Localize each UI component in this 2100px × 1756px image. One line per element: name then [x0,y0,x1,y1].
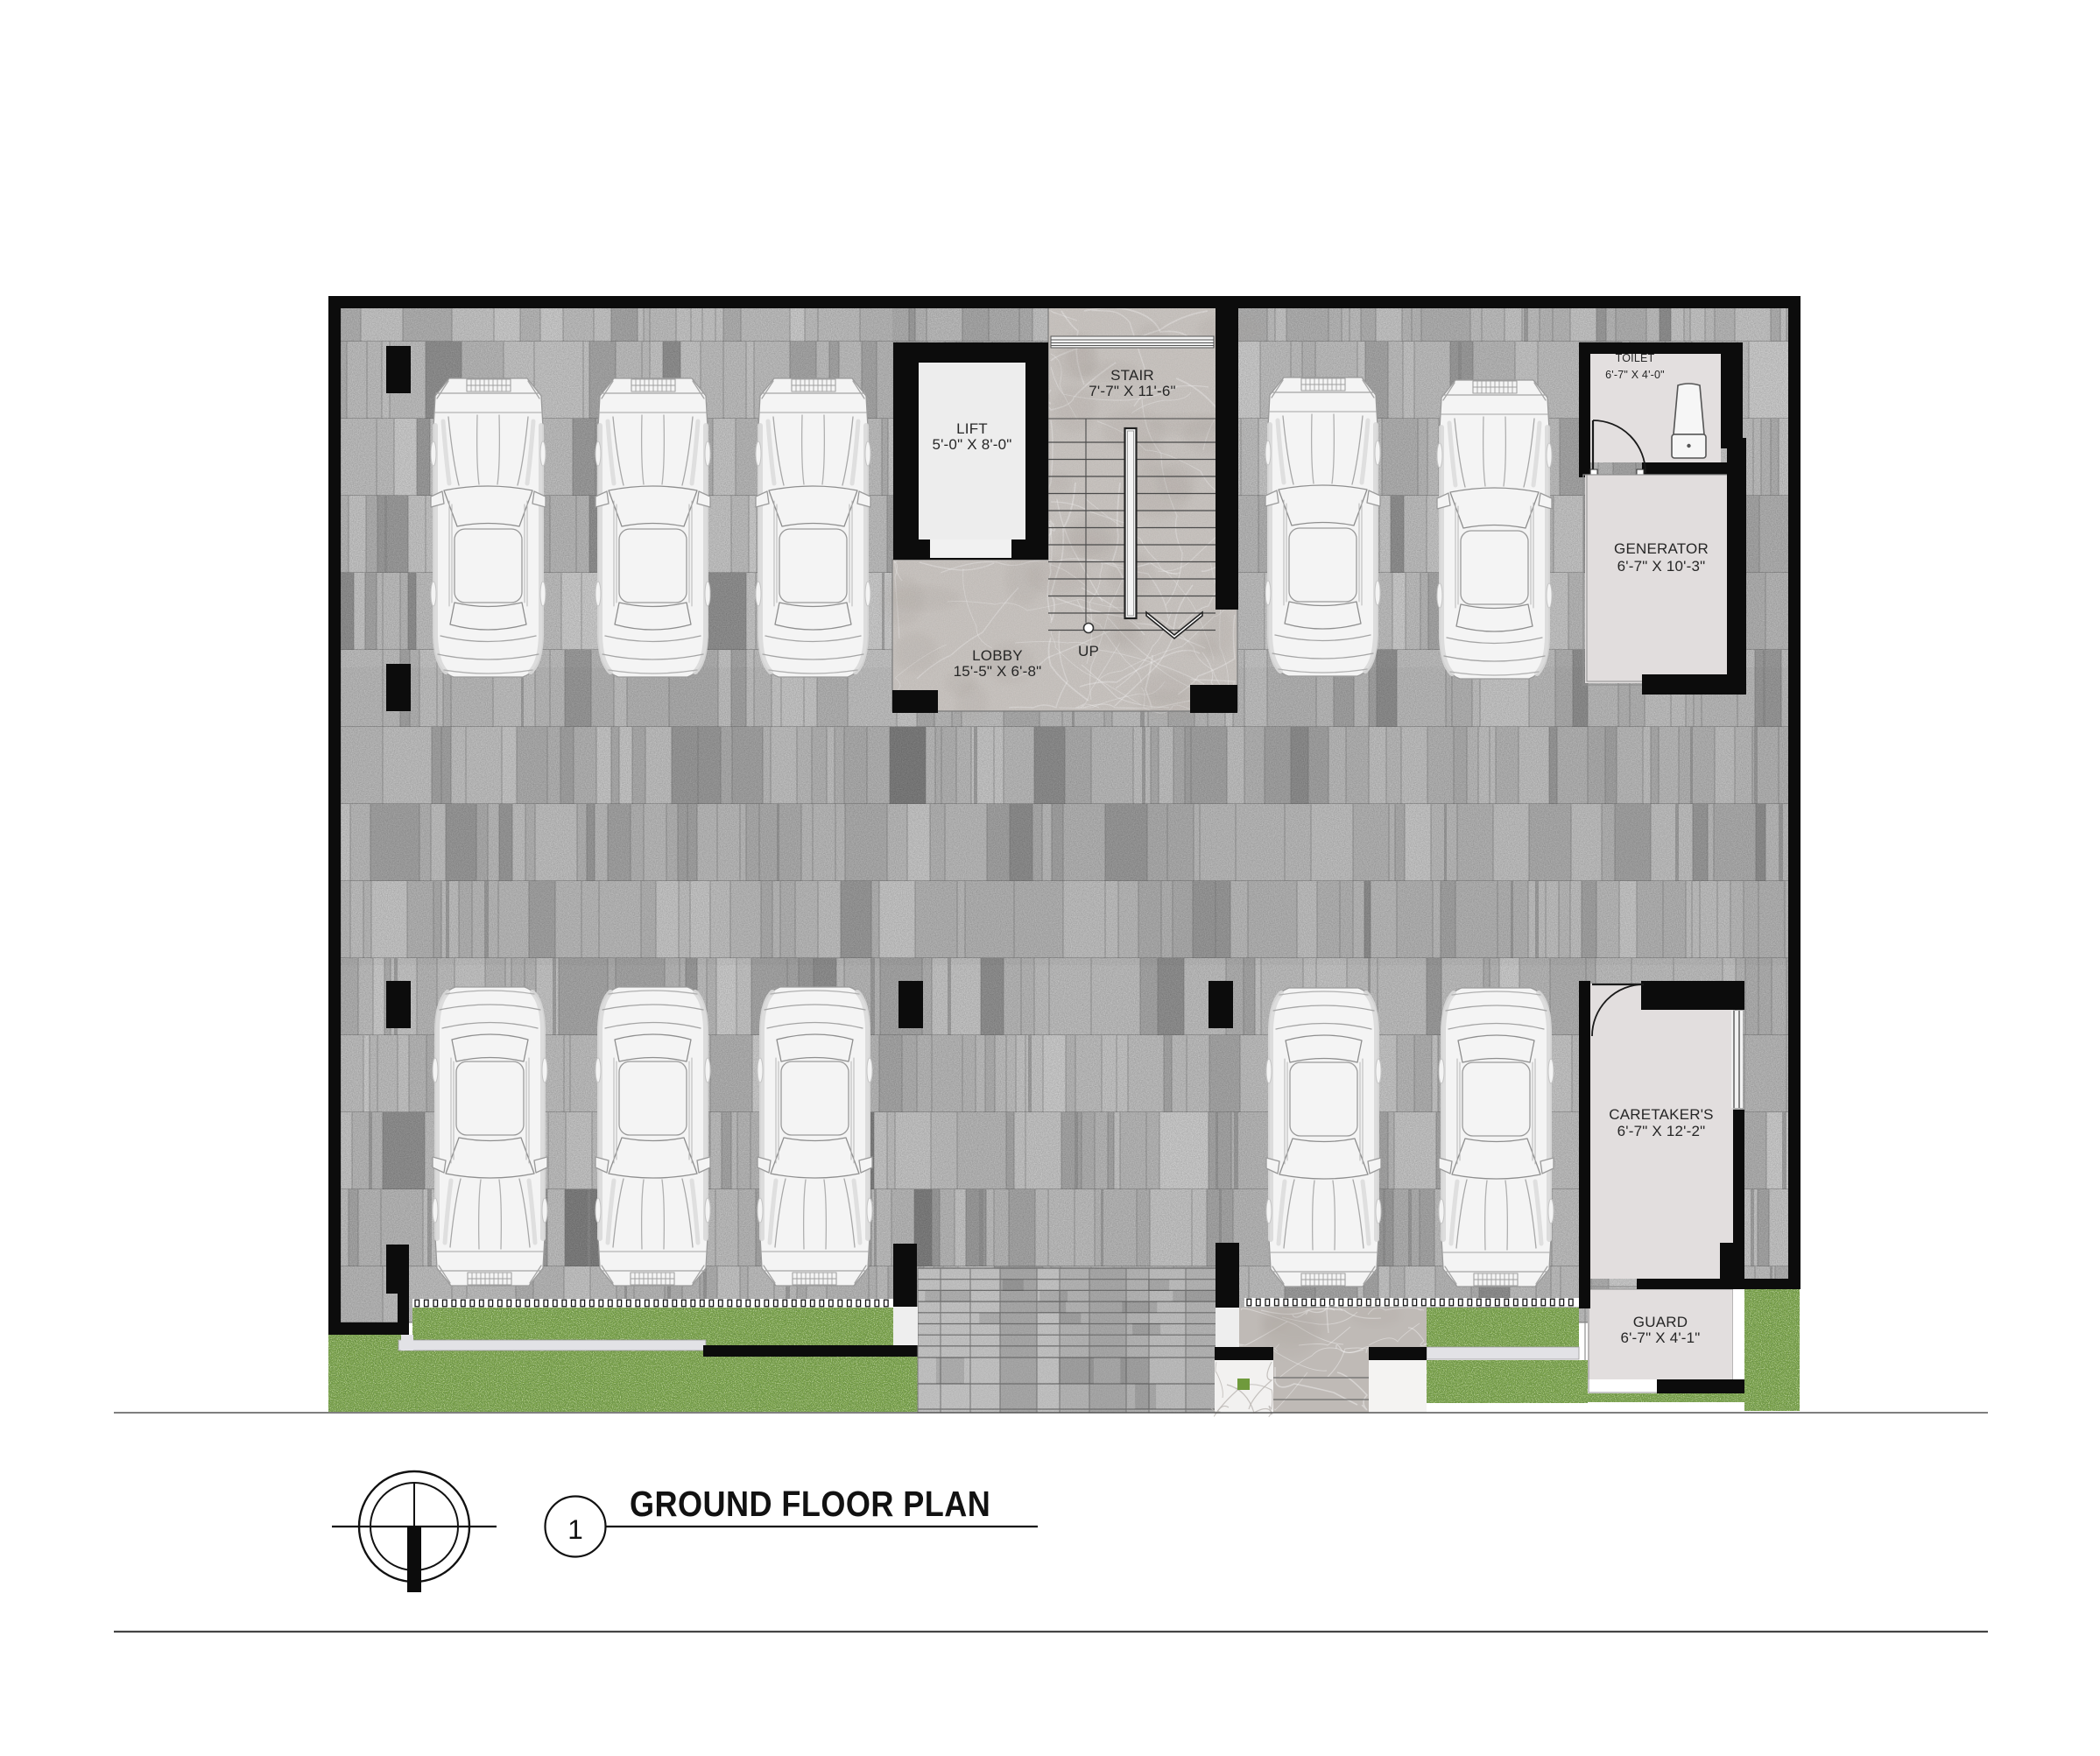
svg-text:5'-0" X 8'-0": 5'-0" X 8'-0" [932,436,1011,453]
svg-text:6'-7" X 10'-3": 6'-7" X 10'-3" [1617,558,1706,575]
svg-text:CARETAKER'S: CARETAKER'S [1609,1106,1713,1123]
svg-text:GROUND FLOOR PLAN: GROUND FLOOR PLAN [630,1484,990,1525]
svg-text:15'-5" X 6'-8": 15'-5" X 6'-8" [954,663,1042,680]
svg-text:GENERATOR: GENERATOR [1614,540,1709,557]
svg-text:6'-7" X 4'-1": 6'-7" X 4'-1" [1620,1329,1700,1346]
svg-text:TOILET: TOILET [1616,352,1655,364]
svg-text:UP: UP [1078,643,1099,659]
svg-text:6'-7" X 12'-2": 6'-7" X 12'-2" [1617,1123,1706,1139]
svg-text:1: 1 [567,1513,583,1545]
svg-text:6'-7" X 4'-0": 6'-7" X 4'-0" [1605,369,1665,381]
svg-text:7'-7" X 11'-6": 7'-7" X 11'-6" [1089,383,1175,399]
svg-text:LOBBY: LOBBY [972,647,1023,664]
svg-text:STAIR: STAIR [1110,367,1154,384]
svg-text:GUARD: GUARD [1633,1314,1688,1330]
svg-text:LIFT: LIFT [956,420,988,437]
